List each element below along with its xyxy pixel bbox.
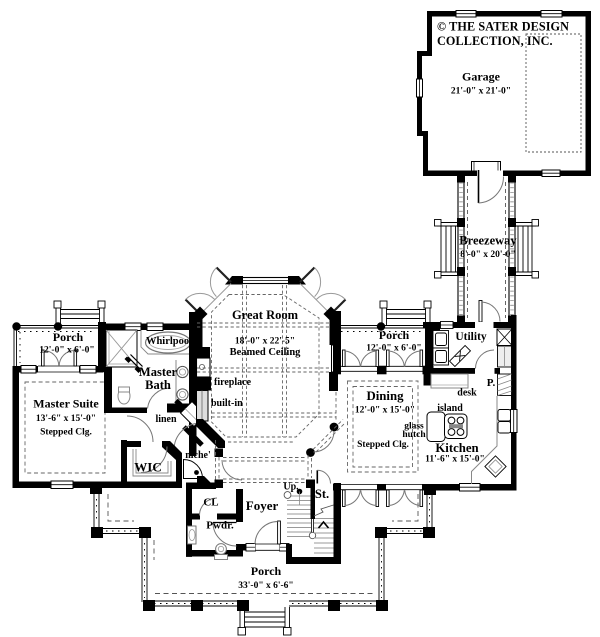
svg-text:WIC: WIC — [134, 460, 161, 475]
svg-text:niche': niche' — [185, 450, 211, 461]
svg-text:8'-0" x 20'-0": 8'-0" x 20'-0" — [460, 250, 515, 260]
svg-text:P.: P. — [487, 377, 496, 389]
svg-text:Stepped Clg.: Stepped Clg. — [357, 440, 409, 450]
svg-text:12'-0" x 15'-0": 12'-0" x 15'-0" — [355, 406, 415, 416]
svg-text:11'-6" x 15'-0": 11'-6" x 15'-0" — [425, 455, 485, 465]
svg-text:33'-0" x 6'-6": 33'-0" x 6'-6" — [238, 581, 293, 591]
svg-text:linen: linen — [155, 414, 177, 425]
svg-text:Utility: Utility — [455, 331, 487, 343]
svg-text:Porch: Porch — [53, 330, 84, 344]
svg-text:18'-0" x 22'-5": 18'-0" x 22'-5" — [235, 337, 295, 347]
svg-text:Great Room: Great Room — [232, 308, 299, 322]
svg-text:Whirlpool: Whirlpool — [146, 336, 192, 347]
svg-text:Bath: Bath — [145, 378, 171, 392]
svg-text:Garage: Garage — [462, 70, 501, 84]
svg-text:fireplace: fireplace — [214, 377, 252, 388]
svg-text:Pwdr.: Pwdr. — [206, 520, 234, 532]
svg-text:12'-0" x 6'-0": 12'-0" x 6'-0" — [39, 346, 94, 356]
svg-text:Beamed Ceiling: Beamed Ceiling — [230, 347, 302, 358]
svg-text:island: island — [437, 403, 463, 414]
svg-text:hutch: hutch — [402, 430, 426, 440]
svg-text:Foyer: Foyer — [246, 498, 279, 513]
svg-text:COLLECTION, INC.: COLLECTION, INC. — [437, 34, 553, 48]
svg-text:built-in: built-in — [211, 398, 243, 409]
svg-text:CL: CL — [203, 497, 218, 509]
svg-text:St.: St. — [315, 487, 329, 501]
svg-text:© THE SATER DESIGN: © THE SATER DESIGN — [437, 20, 569, 34]
svg-text:desk: desk — [457, 388, 477, 399]
svg-text:Stepped Clg.: Stepped Clg. — [40, 428, 92, 438]
svg-text:13'-6" x 15'-0": 13'-6" x 15'-0" — [36, 414, 96, 424]
svg-text:Kitchen: Kitchen — [435, 441, 478, 455]
svg-text:Dining: Dining — [367, 389, 405, 403]
svg-text:Porch: Porch — [379, 328, 410, 342]
svg-text:21'-0" x 21'-0": 21'-0" x 21'-0" — [451, 87, 511, 97]
svg-text:Breezeway: Breezeway — [459, 234, 517, 248]
svg-text:12'-0" x 6'-0": 12'-0" x 6'-0" — [366, 344, 421, 354]
svg-text:Porch: Porch — [251, 564, 282, 578]
svg-text:Master Suite: Master Suite — [33, 397, 99, 411]
svg-text:Up.: Up. — [283, 482, 299, 493]
svg-text:Master: Master — [139, 365, 178, 379]
